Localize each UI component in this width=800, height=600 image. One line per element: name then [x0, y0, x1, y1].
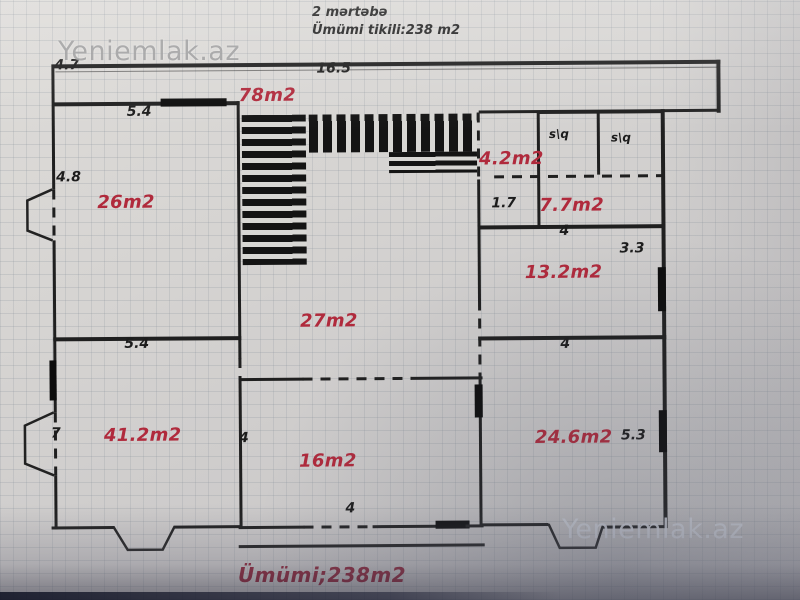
bay-window-outlines — [0, 0, 800, 600]
dim-1-7: 1.7 — [491, 195, 516, 211]
room-label-16m2: 16m2 — [299, 450, 357, 471]
bay-window-outline — [27, 189, 52, 240]
room-label-4-2m2: 4.2m2 — [479, 148, 544, 169]
bay-window-outline — [25, 412, 54, 475]
label-sq-left: s\q — [549, 127, 569, 141]
label-sq-right: s\q — [611, 130, 631, 144]
bay-window-outline — [114, 527, 175, 550]
dim-5-3: 5.3 — [621, 427, 646, 443]
room-label-26m2: 26m2 — [97, 192, 155, 213]
dim-5-4-mid: 5.4 — [124, 336, 149, 352]
room-label-41-2m2: 41.2m2 — [104, 425, 182, 447]
room-label-27m2: 27m2 — [300, 310, 358, 331]
room-label-13-2m2: 13.2m2 — [525, 262, 603, 284]
dim-3-3: 3.3 — [620, 240, 645, 256]
dim-4-8: 4.8 — [56, 169, 81, 185]
dim-4-room24: 4 — [560, 336, 570, 352]
watermark-top-left: Yeniemlak.az — [58, 36, 240, 67]
dim-7: 7 — [51, 425, 61, 441]
dim-4-room16: 4 — [239, 430, 249, 446]
room-label-24-6m2: 24.6m2 — [535, 427, 613, 449]
floorplan-drawing: 78m2 26m2 4.2m2 7.7m2 13.2m2 27m2 41.2m2… — [0, 0, 800, 600]
header-total-built: Ümümi tikili:238 m2 — [312, 23, 460, 38]
footer-total-area: Ümümi;238m2 — [238, 563, 406, 587]
watermark-bottom-right: Yeniemlak.az — [562, 514, 744, 545]
dim-4-room13: 4 — [559, 223, 569, 239]
room-label-78m2: 78m2 — [238, 85, 296, 106]
dim-16-5: 16.5 — [316, 60, 351, 76]
room-label-7-7m2: 7.7m2 — [539, 195, 604, 216]
floorplan-photo: 78m2 26m2 4.2m2 7.7m2 13.2m2 27m2 41.2m2… — [0, 0, 800, 600]
dim-4-bottom: 4 — [345, 500, 355, 516]
header-floor-title: 2 mərtəbə — [312, 5, 388, 20]
dim-5-4-top: 5.4 — [127, 104, 152, 120]
